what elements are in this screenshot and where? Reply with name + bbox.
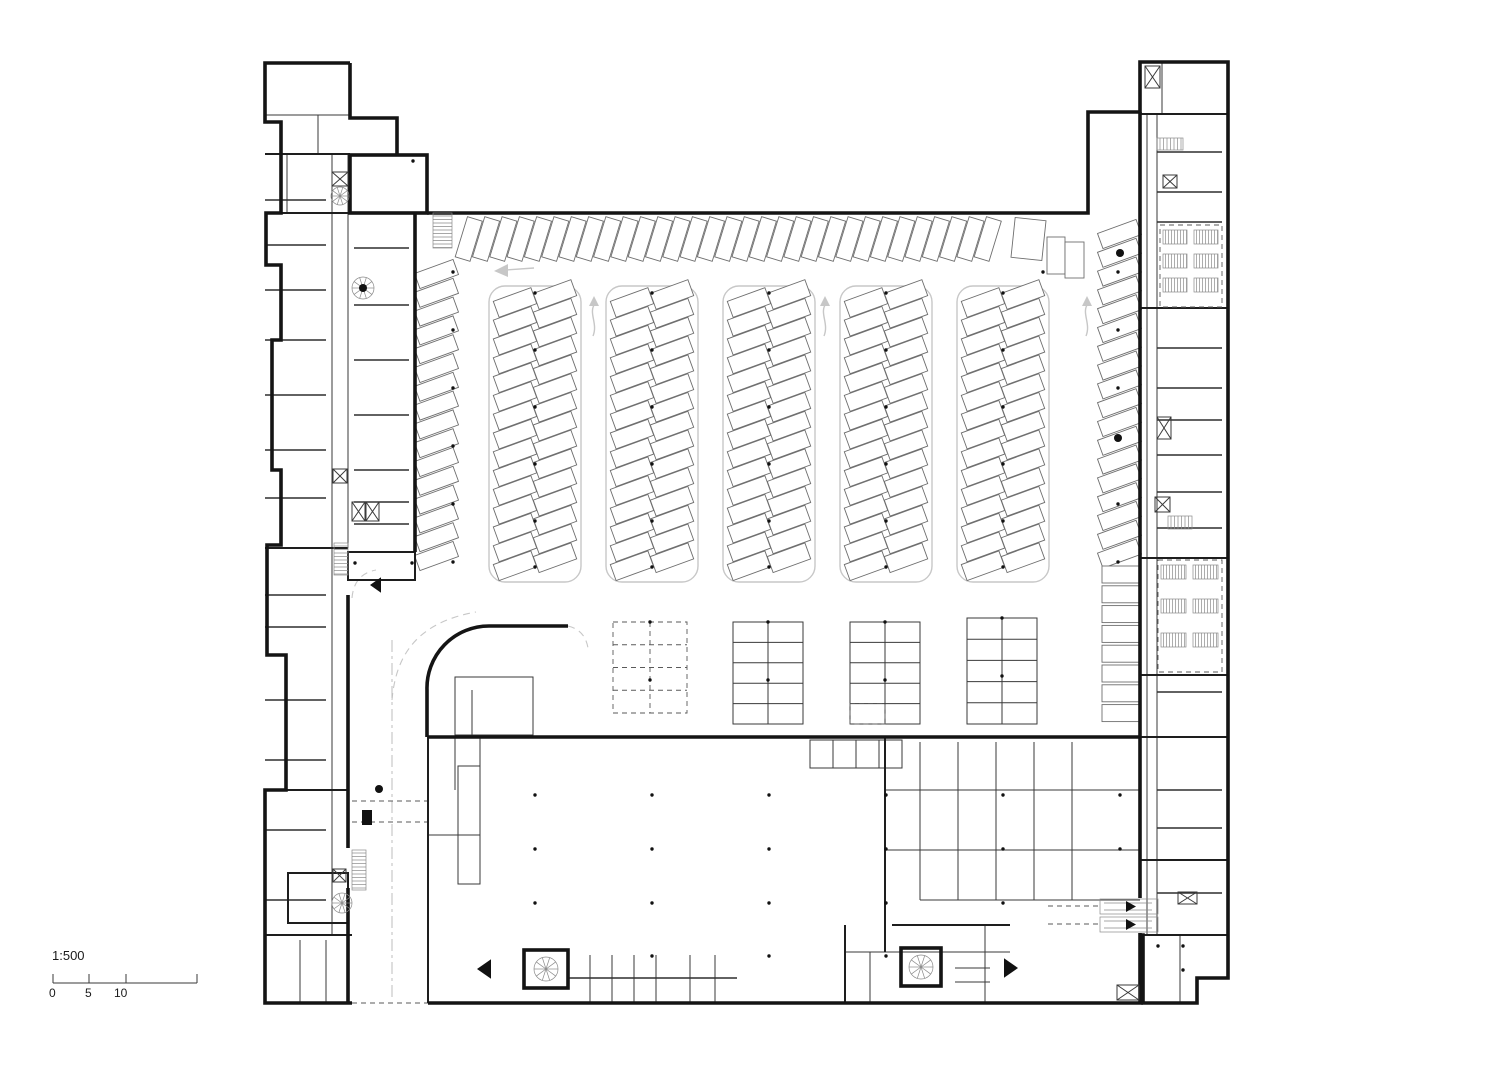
floor-plan-page: 1:500 0 5 10: [0, 0, 1512, 1069]
bike-rack-zones: [1158, 225, 1222, 672]
roadway-markings: [352, 570, 1100, 1003]
scale-tick-5: 5: [85, 986, 92, 1000]
floor-plan-drawing: [0, 0, 1512, 1069]
scale-tick-0: 0: [49, 986, 56, 1000]
storage-grids: [613, 618, 1037, 724]
scale-bar: [53, 974, 197, 983]
escalator-icons: [1100, 899, 1158, 932]
scale-ratio-label: 1:500: [52, 948, 85, 963]
scale-tick-10: 10: [114, 986, 127, 1000]
parking-stalls: [415, 217, 1142, 722]
